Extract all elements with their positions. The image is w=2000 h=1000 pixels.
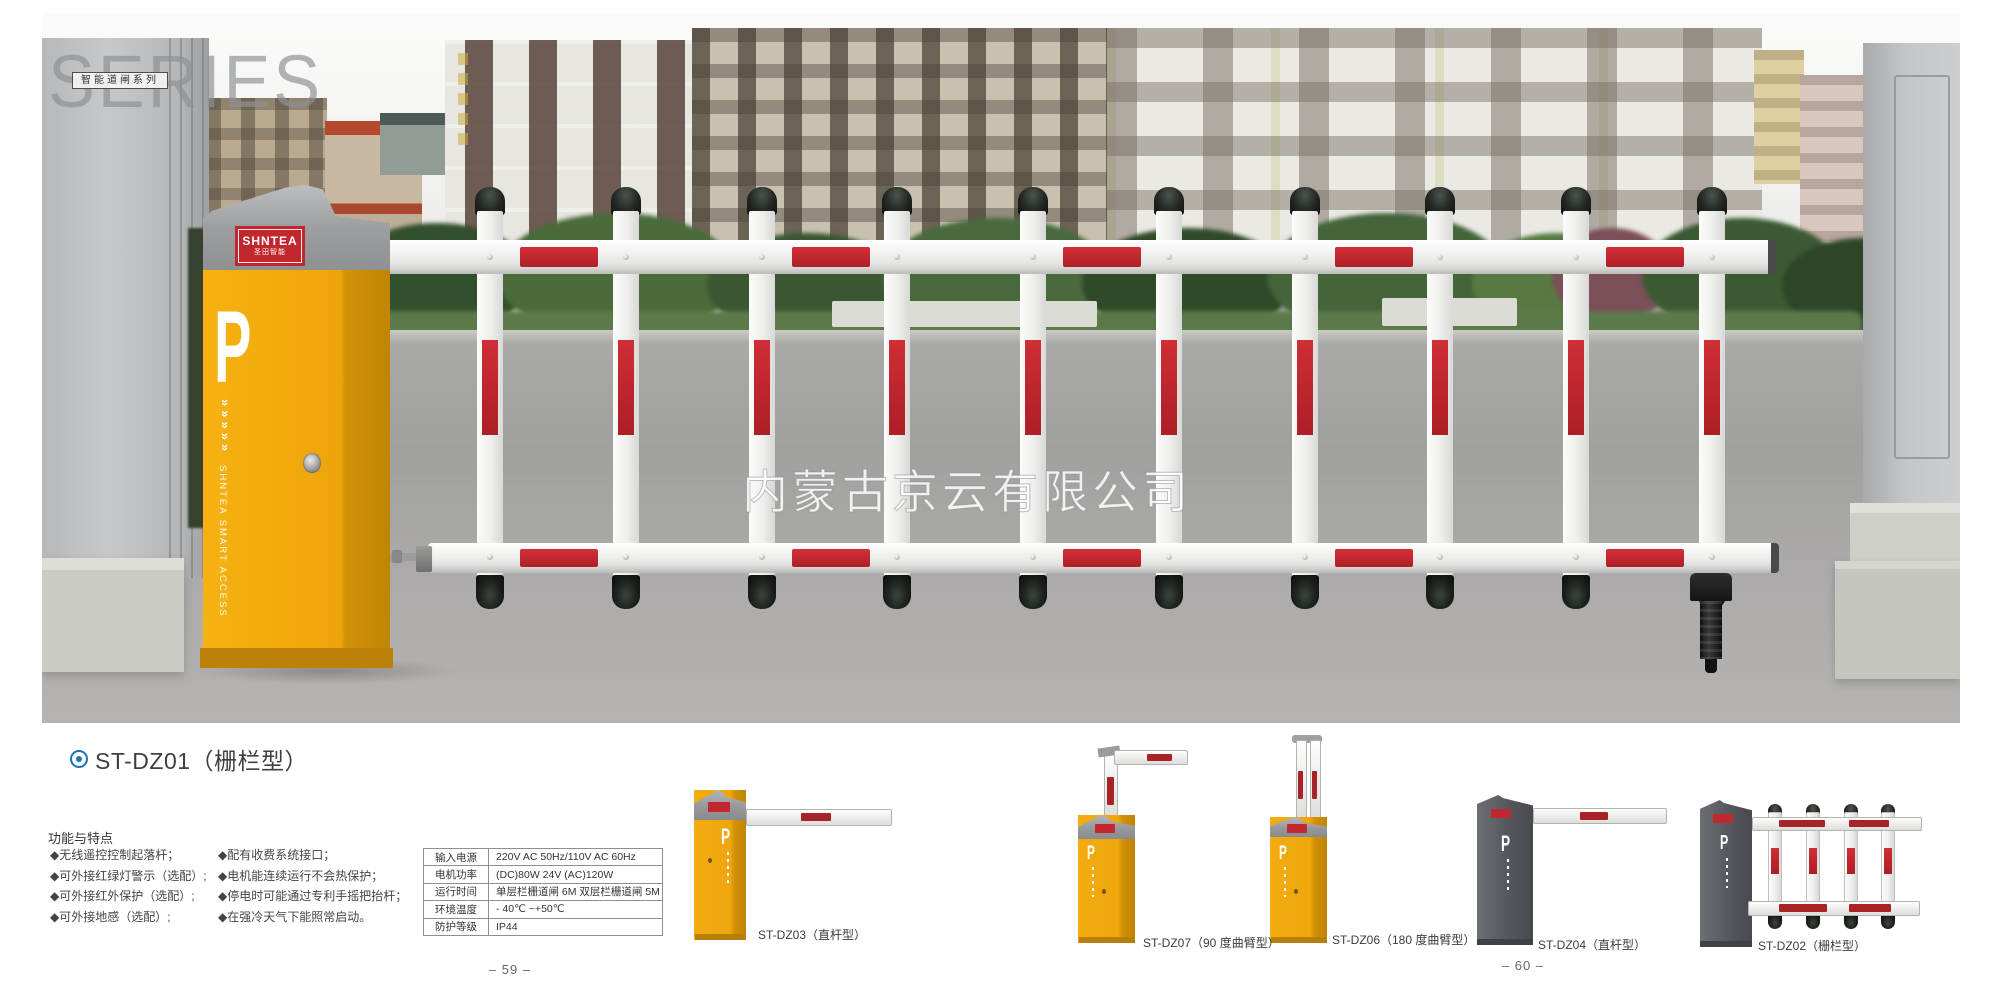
feature-item: ◆电机能连续运行不会热保护； <box>218 866 407 887</box>
mini-parking-letter: P <box>1501 831 1510 857</box>
spec-label: 输入电源 <box>424 849 489 866</box>
rail-rivet <box>1573 254 1579 260</box>
chevron-column: »»»»» <box>218 399 233 455</box>
mini-parking-letter: P <box>1087 843 1095 865</box>
mini-machine: P <box>1078 815 1135 943</box>
fence-post-reflector <box>1704 340 1720 435</box>
fence-post-reflector <box>482 340 498 435</box>
mini-brand-badge <box>1095 824 1115 833</box>
right-pillar-pedestal-top <box>1850 503 1960 565</box>
page-number-left: – 59 – <box>465 962 555 977</box>
mini-brand-badge <box>1287 824 1307 833</box>
fence-post-bottom-cap <box>1426 575 1454 609</box>
mini-fence-post-bottom-cap <box>1844 914 1858 929</box>
right-pillar-pedestal <box>1835 561 1960 679</box>
rail-reflector <box>1335 549 1413 567</box>
spec-value: 220V AC 50Hz/110V AC 60Hz <box>489 849 663 866</box>
feature-item: ◆可外接红外保护（选配）; <box>50 886 207 907</box>
thumbnail-label: ST-DZ02（栅栏型） <box>1758 937 1866 954</box>
table-row: 环境温度- 40℃ ~+50℃ <box>424 901 663 918</box>
feature-item: ◆可外接红绿灯警示（选配）; <box>50 866 207 887</box>
mini-fence-post-bottom-cap <box>1768 914 1782 929</box>
mini-base <box>1079 937 1134 943</box>
rail-rivet <box>1030 554 1036 560</box>
mini-fence-post-bottom-cap <box>1881 914 1895 929</box>
mini-rail-red <box>1849 904 1891 912</box>
rail-rivet <box>1709 554 1715 560</box>
mini-machine: P <box>694 790 746 940</box>
rail-rivet <box>1302 254 1308 260</box>
feature-item: ◆无线遥控控制起落杆； <box>50 845 207 866</box>
mini-arm-red <box>801 813 831 821</box>
feature-item: ◆在强冷天气下能照常启动。 <box>218 907 407 928</box>
brand-name: SHNTEA <box>242 235 297 248</box>
top-rail-end-cap <box>1768 240 1776 274</box>
rail-reflector <box>1606 549 1684 567</box>
spec-label: 电机功率 <box>424 866 489 883</box>
right-pillar-carving <box>1894 75 1950 459</box>
mini-brand-badge <box>708 802 730 812</box>
mini-folded-bar <box>1296 740 1307 821</box>
rail-reflector <box>792 247 870 267</box>
left-pillar-pedestal <box>42 558 184 672</box>
keyhole <box>303 453 321 473</box>
mini-keyhole <box>1102 889 1106 894</box>
thumbnail-label: ST-DZ04（直杆型） <box>1538 936 1646 953</box>
mini-keyhole <box>708 858 712 863</box>
mini-dots <box>727 852 729 886</box>
features-column-1: ◆无线遥控控制起落杆； ◆可外接红绿灯警示（选配）; ◆可外接红外保护（选配）;… <box>50 845 207 927</box>
fence-post-bottom-cap <box>1562 575 1590 609</box>
rail-rivet <box>623 554 629 560</box>
bottom-rail-end-cap <box>1771 543 1779 573</box>
mini-rail-red <box>1779 820 1825 827</box>
rail-reflector <box>520 549 598 567</box>
thumbnail-label: ST-DZ06（180 度曲臂型） <box>1332 931 1475 948</box>
mini-machine: P <box>1700 800 1752 947</box>
mini-parking-letter: P <box>721 824 730 850</box>
arm-connector-block <box>416 546 432 572</box>
fence-post-reflector <box>1025 340 1041 435</box>
mini-brand-badge <box>1491 809 1511 818</box>
product-title-row: ST-DZ01（栅栏型） <box>70 742 308 776</box>
rail-rivet <box>1302 554 1308 560</box>
mini-dots <box>1507 859 1509 891</box>
brand-name-cn: 圣田智能 <box>254 248 286 257</box>
mini-rail-red <box>1779 904 1827 912</box>
mini-dots <box>1092 867 1094 897</box>
fence-post-bottom-cap <box>476 575 504 609</box>
fence-post-bottom-cap <box>748 575 776 609</box>
rail-rivet <box>894 554 900 560</box>
thumbnail-label: ST-DZ07（90 度曲臂型） <box>1143 934 1280 951</box>
fence-post-reflector <box>1568 340 1584 435</box>
product-title: ST-DZ01（栅栏型） <box>95 742 308 776</box>
mini-fence-post-bottom-cap <box>1806 914 1820 929</box>
building-signage-gold <box>458 53 468 145</box>
spec-value: (DC)80W 24V (AC)120W <box>489 866 663 883</box>
rail-rivet <box>1709 254 1715 260</box>
brand-badge: SHNTEA 圣田智能 <box>238 229 302 263</box>
feature-item: ◆配有收费系统接口； <box>218 845 407 866</box>
table-row: 防护等级IP44 <box>424 918 663 935</box>
machine-side-text: SHNTEA SMART ACCESS <box>217 465 228 618</box>
rear-wall <box>832 301 1097 327</box>
fence-post-bottom-cap <box>883 575 911 609</box>
rail-rivet <box>1166 254 1172 260</box>
support-leg-head <box>1690 573 1732 601</box>
spec-label: 防护等级 <box>424 918 489 935</box>
mini-fence-bottom-rail <box>1748 901 1920 916</box>
specs-table: 输入电源220V AC 50Hz/110V AC 60Hz 电机功率(DC)80… <box>423 848 663 936</box>
mini-keyhole <box>1294 889 1298 894</box>
rail-reflector <box>1063 247 1141 267</box>
spec-label: 运行时间 <box>424 883 489 900</box>
machine-base <box>200 648 393 668</box>
rail-rivet <box>759 554 765 560</box>
mini-horizontal-arm <box>1114 750 1188 765</box>
mini-fence-top-rail <box>1752 817 1922 831</box>
mini-dots <box>1284 867 1286 897</box>
fence-post-bottom-cap <box>612 575 640 609</box>
rail-rivet <box>1437 254 1443 260</box>
mini-arm <box>746 809 892 826</box>
rail-reflector <box>1063 549 1141 567</box>
parking-letter: P <box>214 297 251 397</box>
rail-reflector <box>792 549 870 567</box>
support-leg-tip <box>1705 659 1717 673</box>
fence-post-reflector <box>1432 340 1448 435</box>
table-row: 输入电源220V AC 50Hz/110V AC 60Hz <box>424 849 663 866</box>
support-leg-shaft <box>1700 601 1722 659</box>
thumbnail-label: ST-DZ03（直杆型） <box>758 926 866 943</box>
spec-value: - 40℃ ~+50℃ <box>489 901 663 918</box>
mini-machine: P <box>1477 795 1533 945</box>
mini-parking-letter: P <box>1720 832 1728 855</box>
catalog-page: { "header": { "series": "SERIES", "serie… <box>0 0 2000 1000</box>
mini-arm <box>1533 808 1667 824</box>
rail-reflector <box>1335 247 1413 267</box>
spec-value: 单层栏栅道闸 6M 双层栏栅道闸 5M <box>489 883 663 900</box>
bullet-icon <box>70 750 88 768</box>
features-column-2: ◆配有收费系统接口； ◆电机能连续运行不会热保护； ◆停电时可能通过专利手摇把抬… <box>218 845 407 927</box>
feature-item: ◆可外接地感（选配）; <box>50 907 207 928</box>
rail-rivet <box>894 254 900 260</box>
rail-rivet <box>1030 254 1036 260</box>
fence-post-reflector <box>1161 340 1177 435</box>
mini-fence-post-reflector <box>1847 848 1855 874</box>
page-number-right: – 60 – <box>1478 958 1568 973</box>
mini-arm-red <box>1580 812 1608 820</box>
feature-item: ◆停电时可能通过专利手摇把抬杆； <box>218 886 407 907</box>
spec-label: 环境温度 <box>424 901 489 918</box>
mini-fence-post-reflector <box>1809 848 1817 874</box>
mini-rail-red <box>1849 820 1889 827</box>
product-photo: SHNTEA 圣田智能 P »»»»» SHNTEA SMART ACCESS … <box>42 13 1960 723</box>
mini-brand-badge <box>1713 814 1733 823</box>
mini-base <box>1477 939 1533 945</box>
table-row: 电机功率(DC)80W 24V (AC)120W <box>424 866 663 883</box>
photo-watermark: 内蒙古京云有限公司 <box>742 456 1262 522</box>
rail-rivet <box>623 254 629 260</box>
mini-arm-red <box>1107 777 1114 805</box>
fence-post-bottom-cap <box>1155 575 1183 609</box>
mini-fence-post-reflector <box>1884 848 1892 874</box>
mini-machine: P <box>1270 817 1327 943</box>
mini-arm-red <box>1147 754 1172 761</box>
mini-base <box>1700 941 1752 947</box>
fence-post-reflector <box>754 340 770 435</box>
series-tag-box: 智能道闸系列 <box>72 72 168 89</box>
mini-arm-red <box>1312 771 1317 799</box>
mini-fence-post-reflector <box>1771 848 1779 874</box>
mini-arm-red <box>1298 771 1303 799</box>
rail-rivet <box>487 554 493 560</box>
rail-rivet <box>1437 554 1443 560</box>
mini-dots <box>1726 858 1728 888</box>
mini-folded-bar <box>1310 740 1321 821</box>
fence-post-reflector <box>1297 340 1313 435</box>
arm-connector-nut <box>392 550 402 563</box>
fence-post-reflector <box>889 340 905 435</box>
building-cream-tower <box>1754 50 1804 184</box>
rail-reflector <box>1606 247 1684 267</box>
rail-rivet <box>1166 554 1172 560</box>
fence-post-bottom-cap <box>1291 575 1319 609</box>
table-row: 运行时间单层栏栅道闸 6M 双层栏栅道闸 5M <box>424 883 663 900</box>
rail-rivet <box>759 254 765 260</box>
rail-rivet <box>1573 554 1579 560</box>
fence-post-bottom-cap <box>1019 575 1047 609</box>
fence-post-reflector <box>618 340 634 435</box>
barrier-gate-machine: SHNTEA 圣田智能 P »»»»» SHNTEA SMART ACCESS <box>203 185 390 668</box>
rail-rivet <box>487 254 493 260</box>
spec-value: IP44 <box>489 918 663 935</box>
mini-base <box>695 934 745 940</box>
rail-reflector <box>520 247 598 267</box>
mini-parking-letter: P <box>1279 843 1287 865</box>
